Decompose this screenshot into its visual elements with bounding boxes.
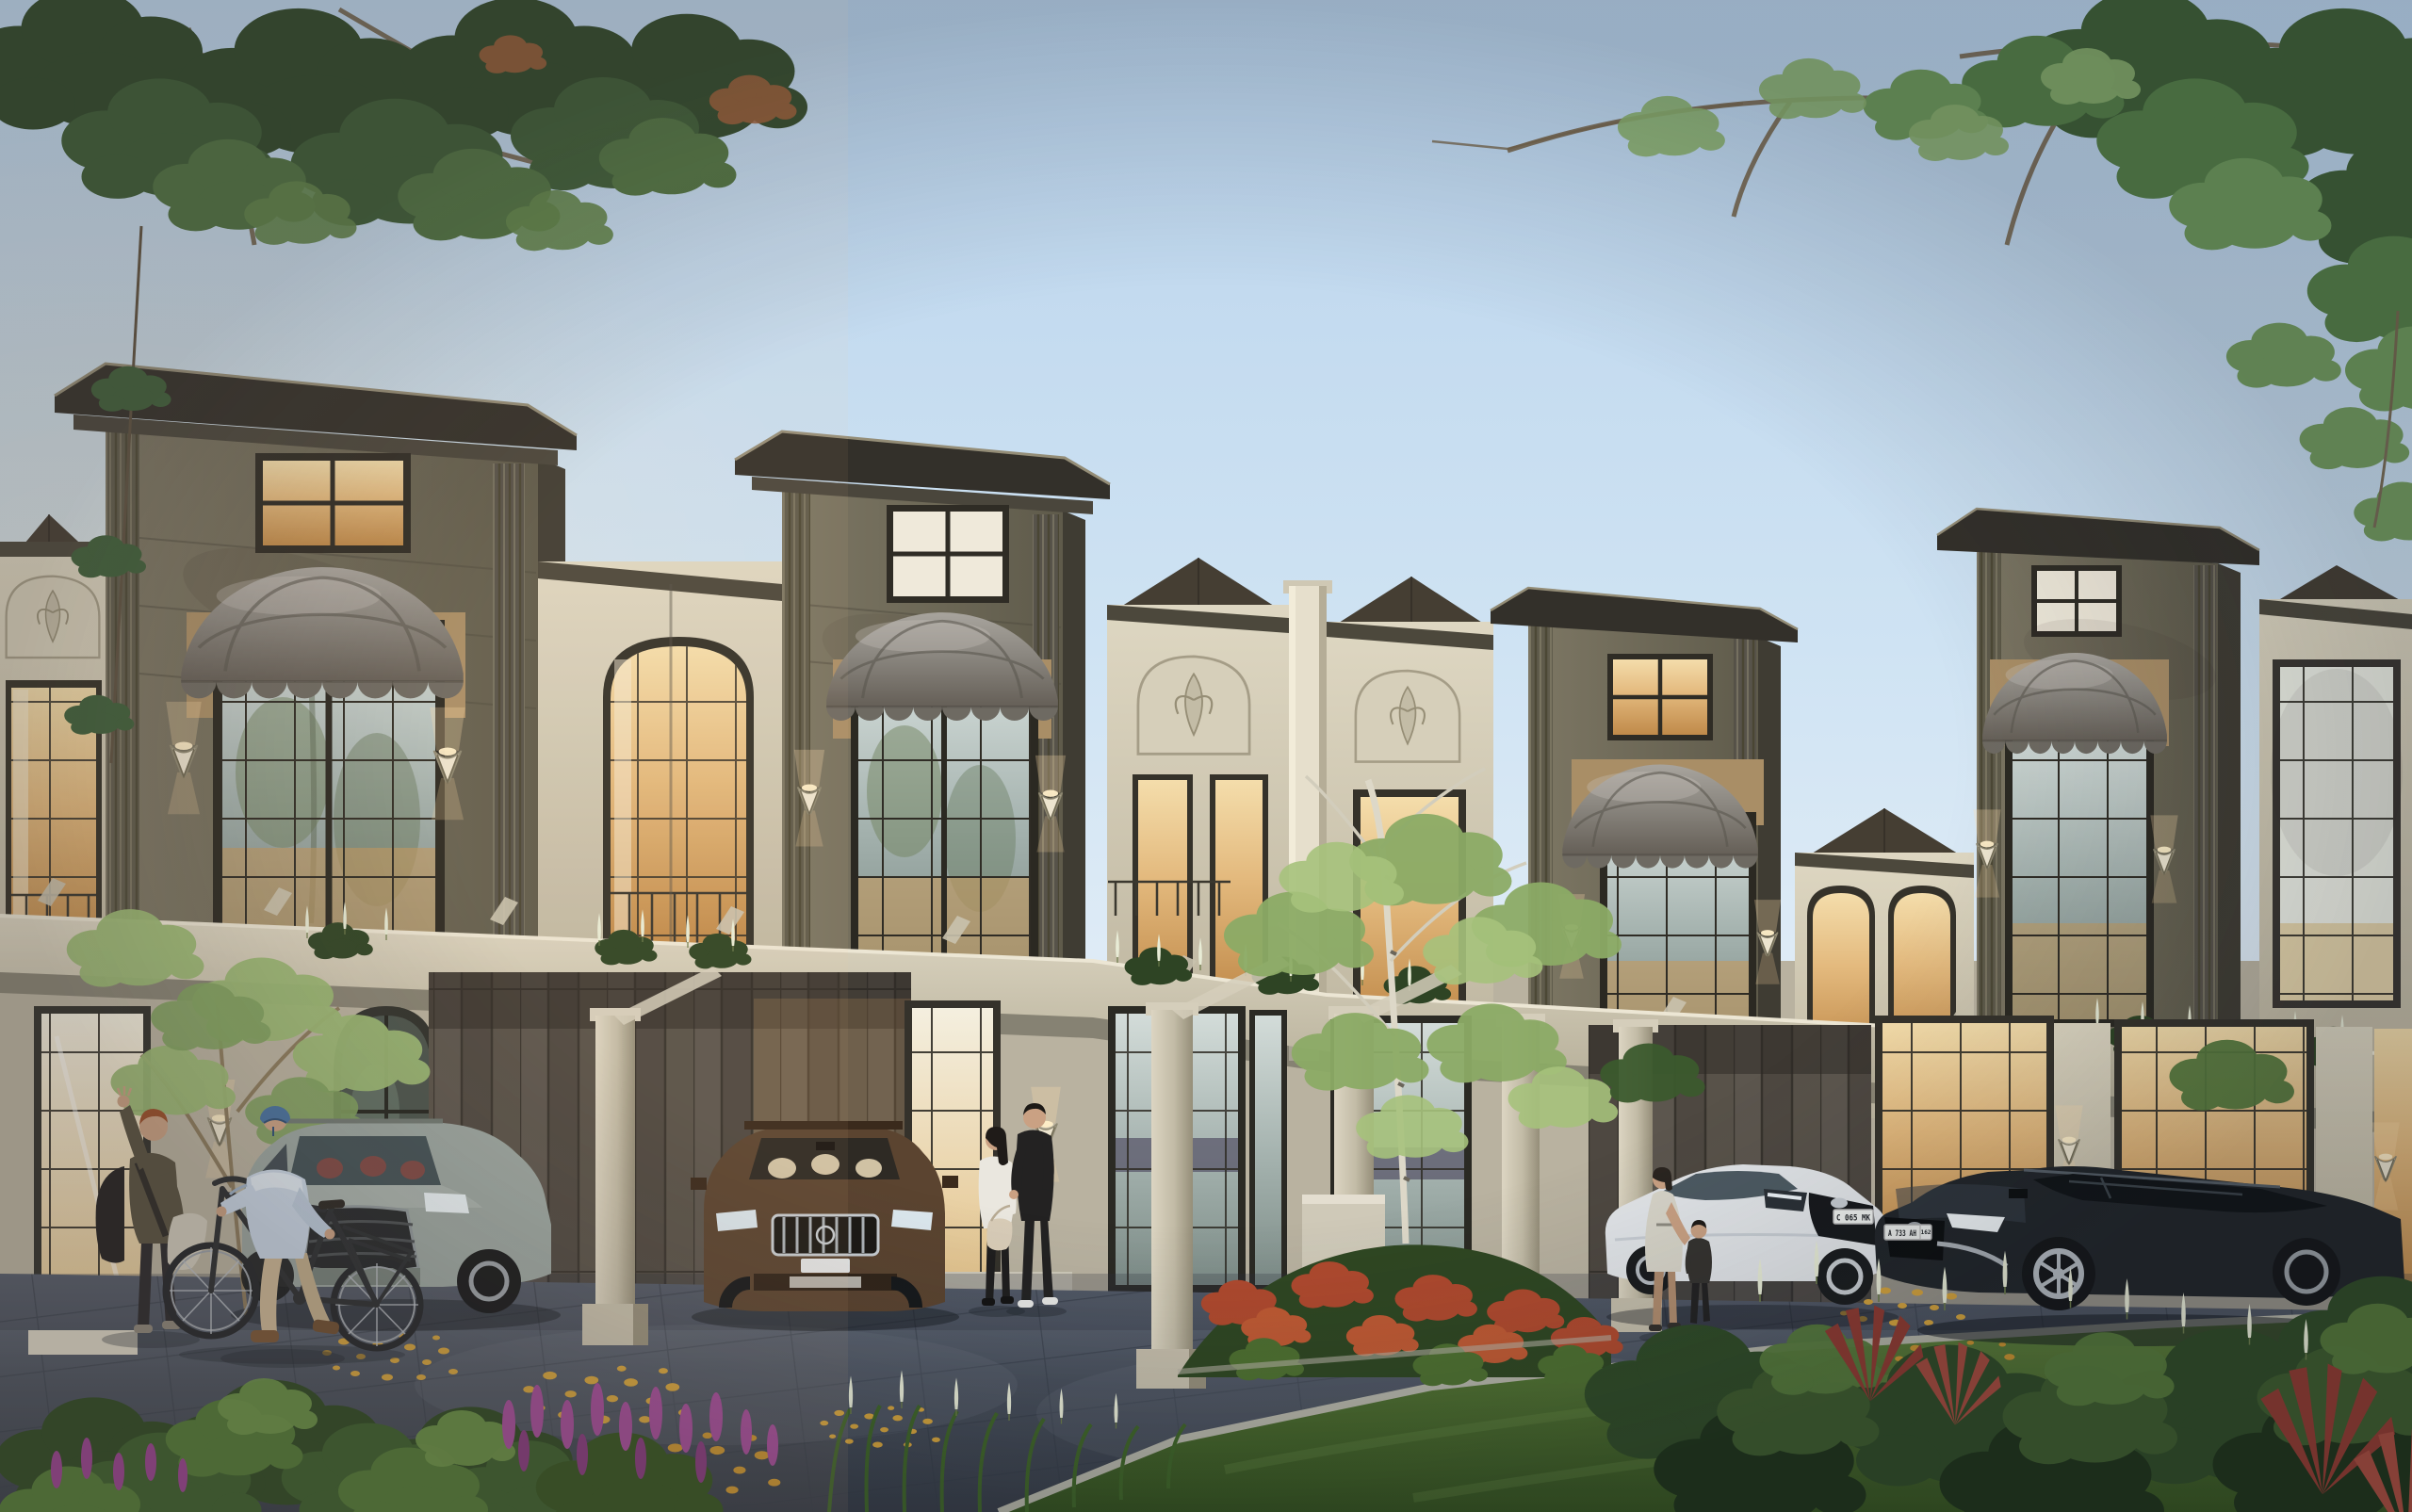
architectural-render-scene: C 065 MK A 733 AH 162 <box>0 0 2412 1512</box>
warm-light-wash <box>0 0 848 1512</box>
render-canvas: C 065 MK A 733 AH 162 <box>0 0 2412 1512</box>
